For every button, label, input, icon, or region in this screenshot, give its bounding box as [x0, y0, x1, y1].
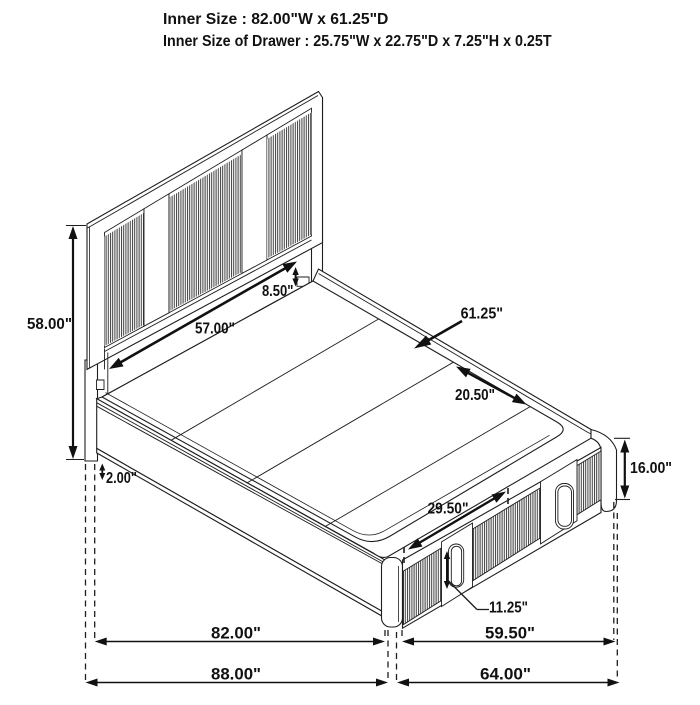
svg-text:88.00": 88.00": [211, 665, 261, 684]
svg-text:29.50": 29.50": [428, 501, 469, 518]
svg-text:61.25": 61.25": [461, 305, 503, 322]
svg-text:Inner Size : 82.00"W x 61.25"D: Inner Size : 82.00"W x 61.25"D: [163, 11, 388, 28]
svg-text:57.00": 57.00": [195, 321, 235, 338]
svg-text:20.50": 20.50": [455, 387, 495, 404]
svg-text:16.00": 16.00": [630, 460, 672, 477]
svg-text:59.50": 59.50": [485, 623, 535, 642]
svg-text:58.00": 58.00": [27, 316, 72, 333]
svg-text:64.00": 64.00": [480, 665, 531, 684]
svg-text:Inner Size of Drawer : 25.75"W: Inner Size of Drawer : 25.75"W x 22.75"D…: [163, 33, 552, 50]
svg-text:82.00": 82.00": [211, 623, 261, 642]
svg-text:11.25": 11.25": [489, 599, 528, 616]
svg-text:2.00": 2.00": [106, 470, 137, 487]
svg-text:8.50": 8.50": [262, 283, 294, 300]
